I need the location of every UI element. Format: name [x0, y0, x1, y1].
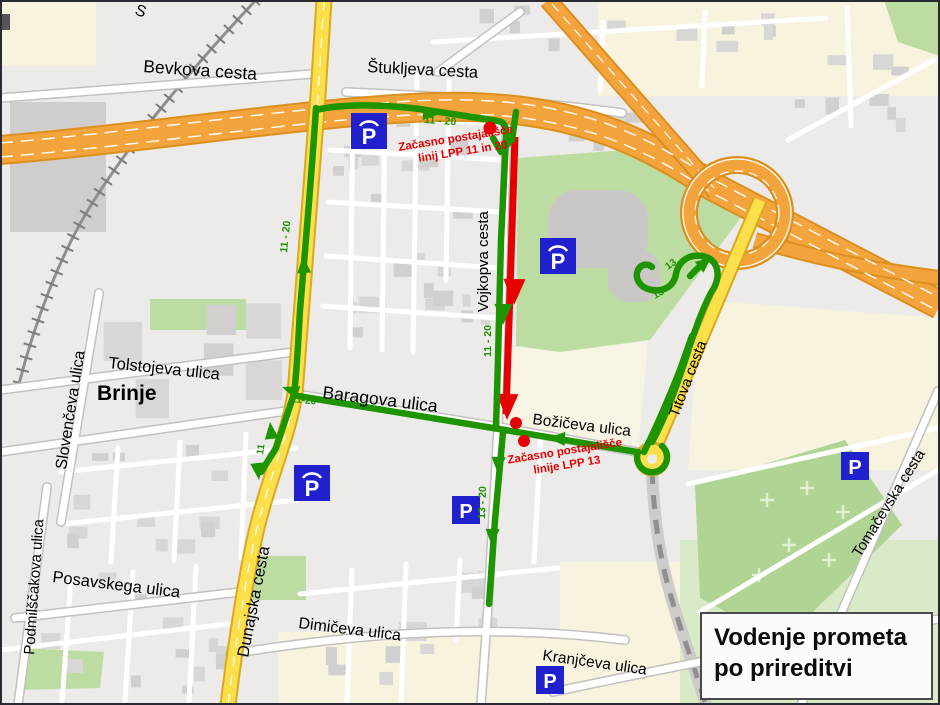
building-block: [74, 495, 91, 510]
building-block: [201, 522, 215, 537]
svg-text:P: P: [459, 501, 472, 523]
building-block: [194, 667, 205, 682]
building-block: [379, 672, 393, 685]
building-block: [873, 54, 893, 70]
building-block: [549, 39, 560, 52]
parking-icon: P: [536, 666, 564, 694]
building-block: [176, 649, 190, 657]
building-block: [472, 587, 486, 599]
svg-text:P: P: [362, 124, 377, 149]
building-block: [480, 9, 494, 24]
building-block: [828, 55, 849, 65]
route-label-south: 13 - 20: [476, 486, 489, 519]
parking-icon: P: [841, 452, 869, 480]
district-label-brinje: Brinje: [97, 382, 157, 405]
parking-garage-icon: P: [540, 238, 576, 274]
building-block: [246, 303, 281, 338]
building-block: [328, 665, 346, 676]
svg-text:P: P: [551, 249, 566, 274]
building-block: [463, 294, 471, 306]
building-block: [433, 291, 453, 306]
route-label-dunajska-south: 11: [255, 443, 267, 455]
svg-text:P: P: [848, 457, 861, 479]
building-block: [333, 166, 344, 176]
building-block: [67, 534, 79, 549]
building-block: [764, 26, 773, 40]
building-block: [174, 539, 195, 553]
building-block: [795, 99, 805, 108]
building-block: [896, 118, 906, 132]
svg-text:P: P: [543, 671, 556, 693]
title-line-1: Vodenje prometa: [714, 622, 931, 653]
building-block: [722, 25, 735, 34]
street-label-vojkova: Vojkopva cesta: [475, 210, 492, 312]
building-block: [326, 647, 337, 665]
building-block: [246, 360, 282, 400]
building-block: [887, 107, 896, 120]
map-canvas: P P P P P P Bevkova cesta Štukljeva cest…: [0, 0, 940, 705]
building-block: [131, 676, 141, 688]
title-box: Vodenje prometa po prireditvi: [700, 612, 933, 700]
building-block: [362, 154, 380, 166]
building-block: [420, 644, 434, 654]
building-block: [716, 41, 738, 52]
building-block: [207, 305, 237, 335]
parking-garage-icon: P: [294, 465, 330, 501]
building-block: [212, 470, 228, 481]
route-label-top: 11 - 20: [424, 114, 457, 128]
traffic-map-page: P P P P P P Bevkova cesta Štukljeva cest…: [0, 0, 940, 705]
industrial-block: [10, 102, 106, 232]
building-block: [424, 283, 434, 298]
parking-garage-icon: P: [351, 113, 387, 149]
building-block: [156, 539, 168, 552]
svg-text:P: P: [305, 476, 320, 501]
building-block: [92, 453, 108, 461]
route-label-vojkova: 11 - 20: [482, 325, 494, 357]
title-line-2: po prireditvi: [714, 653, 931, 684]
building-block: [209, 638, 218, 652]
